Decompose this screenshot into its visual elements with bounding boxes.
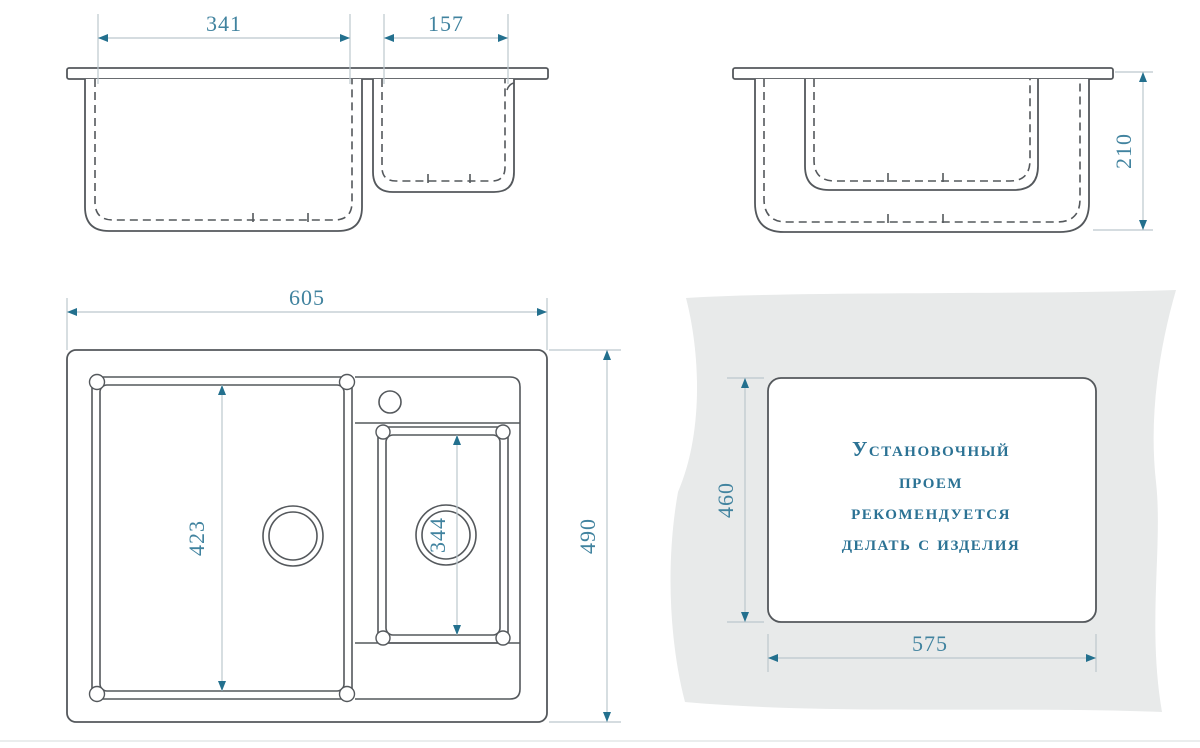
front-second-bowl-outline (373, 79, 514, 192)
side-second-bowl-outline (805, 79, 1038, 190)
cutout-note-line-1: Установочный (852, 437, 1010, 461)
overall-depth-label: 490 (575, 518, 600, 554)
dim-arrow-right (340, 34, 350, 42)
main-bowl-corner-radius (90, 687, 105, 702)
main-bowl-length-label: 423 (184, 520, 209, 556)
dim-arrow-right (498, 34, 508, 42)
cutout-note-line-2: проем (899, 469, 963, 493)
opening-width-label: 575 (912, 631, 948, 656)
dim-overall-width: 605 (67, 285, 547, 350)
dim-arrow-left (384, 34, 394, 42)
main-bowl-corner-radius (90, 375, 105, 390)
cutout-note-line-3: рекомендуется (851, 500, 1011, 524)
installation-cutout-view: Установочный проем рекомендуется делать … (671, 290, 1176, 712)
drawing-svg: 341 157 210 (0, 0, 1200, 748)
second-bowl-corner-radius (496, 631, 510, 645)
sink-technical-drawing: 341 157 210 (0, 0, 1200, 748)
dim-arrow-up (1139, 72, 1147, 82)
front-countertop-rim (67, 68, 548, 79)
main-bowl-corner-radius (340, 375, 355, 390)
dim-arrow-down (603, 712, 611, 722)
dim-bowl-depth: 210 (1093, 72, 1153, 230)
second-bowl-corner-radius (376, 631, 390, 645)
main-bowl-corner-radius (340, 687, 355, 702)
second-bowl-length-label: 344 (425, 517, 450, 553)
overall-width-label: 605 (289, 285, 325, 310)
front-main-bowl-outline (85, 79, 362, 231)
dim-arrow-left (67, 308, 77, 316)
side-countertop-rim (733, 68, 1113, 79)
dim-arrow-down (1139, 220, 1147, 230)
front-view: 341 157 (67, 11, 548, 231)
top-sink-outer-edge (67, 350, 547, 722)
main-bowl-width-label: 341 (206, 11, 242, 36)
second-bowl-corner-radius (496, 425, 510, 439)
opening-depth-label: 460 (713, 482, 738, 518)
cutout-note-line-4: делать с изделия (842, 531, 1021, 555)
dim-arrow-right (537, 308, 547, 316)
second-bowl-corner-radius (376, 425, 390, 439)
dim-arrow-left (98, 34, 108, 42)
top-view: 605 490 423 344 (67, 285, 621, 722)
second-bowl-width-label: 157 (428, 11, 464, 36)
dim-arrow-up (603, 350, 611, 360)
bowl-depth-label: 210 (1111, 133, 1136, 169)
dim-overall-depth: 490 (549, 350, 621, 722)
side-view: 210 (733, 68, 1153, 232)
